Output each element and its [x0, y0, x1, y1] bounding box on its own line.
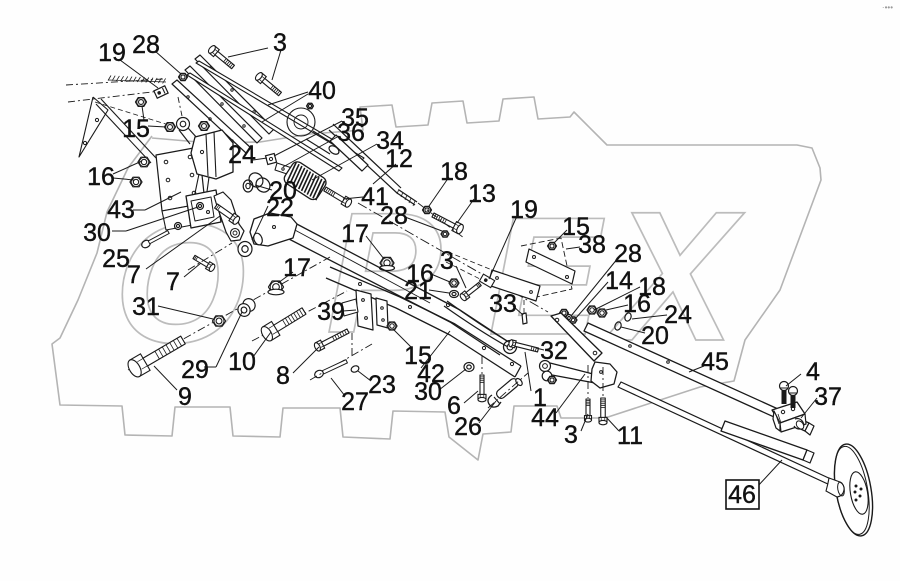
svg-text:17: 17: [283, 254, 311, 282]
svg-text:16: 16: [623, 290, 651, 318]
svg-text:12: 12: [385, 145, 413, 173]
svg-text:33: 33: [489, 290, 517, 318]
svg-text:8: 8: [276, 362, 290, 390]
svg-text:46: 46: [728, 481, 756, 509]
svg-text:19: 19: [98, 39, 126, 67]
svg-text:25: 25: [102, 245, 130, 273]
svg-text:38: 38: [578, 231, 606, 259]
svg-text:18: 18: [440, 158, 468, 186]
svg-text:43: 43: [107, 196, 135, 224]
svg-text:44: 44: [531, 404, 559, 432]
svg-text:17: 17: [341, 220, 369, 248]
svg-text:32: 32: [540, 337, 568, 365]
svg-text:19: 19: [510, 196, 538, 224]
svg-text:16: 16: [87, 163, 115, 191]
svg-text:45: 45: [701, 348, 729, 376]
svg-text:40: 40: [308, 77, 336, 105]
svg-text:3: 3: [564, 421, 578, 449]
svg-text:7: 7: [166, 268, 180, 296]
svg-text:22: 22: [266, 194, 294, 222]
svg-text:28: 28: [132, 31, 160, 59]
svg-text:24: 24: [228, 141, 256, 169]
svg-text:20: 20: [641, 322, 669, 350]
svg-text:·•••: ·•••: [882, 3, 893, 12]
svg-text:4: 4: [806, 358, 820, 386]
svg-text:30: 30: [83, 219, 111, 247]
svg-text:21: 21: [404, 277, 432, 305]
svg-text:31: 31: [132, 293, 160, 321]
svg-text:10: 10: [228, 348, 256, 376]
svg-text:13: 13: [468, 180, 496, 208]
svg-text:15: 15: [122, 115, 150, 143]
svg-text:28: 28: [614, 240, 642, 268]
svg-text:28: 28: [380, 202, 408, 230]
svg-text:36: 36: [337, 119, 365, 147]
svg-text:3: 3: [440, 247, 454, 275]
svg-text:29: 29: [181, 356, 209, 384]
svg-text:26: 26: [454, 413, 482, 441]
svg-text:3: 3: [273, 29, 287, 57]
svg-text:39: 39: [317, 298, 345, 326]
svg-text:27: 27: [341, 388, 369, 416]
svg-text:9: 9: [178, 383, 192, 411]
svg-text:37: 37: [814, 383, 842, 411]
svg-text:30: 30: [414, 378, 442, 406]
svg-text:11: 11: [617, 422, 643, 450]
svg-text:7: 7: [127, 261, 141, 289]
svg-text:23: 23: [368, 371, 396, 399]
